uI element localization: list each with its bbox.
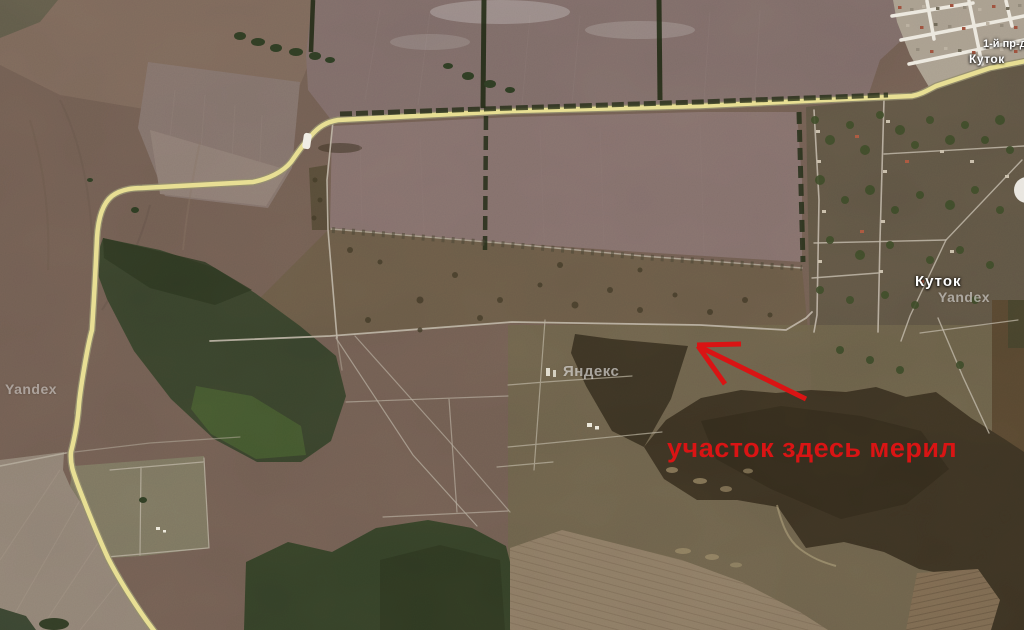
texture-layer [0,0,1024,630]
map-image [0,0,1024,630]
satellite-map-canvas[interactable]: 1-й пр-д Куток Куток Yandex Яндекс Yande… [0,0,1024,630]
